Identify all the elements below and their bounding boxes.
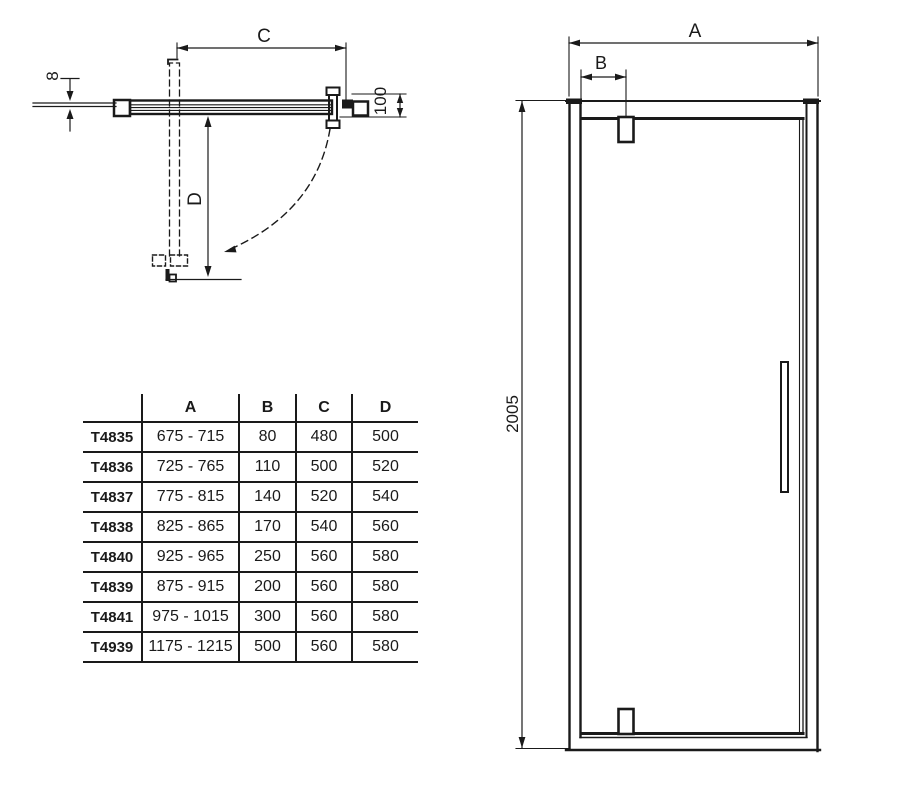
model-cell: T4840: [83, 542, 142, 572]
table-row: T4841 975 - 1015 300 560 580: [83, 602, 418, 632]
value-a: 925 - 965: [142, 542, 239, 572]
dim-label-d: D: [180, 184, 210, 214]
value-c: 540: [296, 512, 352, 542]
value-d: 580: [352, 602, 418, 632]
value-c: 560: [296, 542, 352, 572]
value-b: 110: [239, 452, 296, 482]
value-d: 500: [352, 422, 418, 452]
value-c: 560: [296, 572, 352, 602]
value-d: 560: [352, 512, 418, 542]
table-row: T4837 775 - 815 140 520 540: [83, 482, 418, 512]
table-row: T4835 675 - 715 80 480 500: [83, 422, 418, 452]
value-b: 140: [239, 482, 296, 512]
value-d: 540: [352, 482, 418, 512]
door-panel-plan: [130, 101, 332, 115]
model-cell: T4841: [83, 602, 142, 632]
dim-c: [177, 43, 346, 99]
header-model: [83, 394, 142, 422]
model-cell: T4839: [83, 572, 142, 602]
model-cell: T4836: [83, 452, 142, 482]
header-c: C: [296, 394, 352, 422]
door-handle: [781, 362, 788, 492]
table-row: T4836 725 - 765 110 500 520: [83, 452, 418, 482]
header-b: B: [239, 394, 296, 422]
value-c: 560: [296, 632, 352, 662]
value-a: 725 - 765: [142, 452, 239, 482]
plan-view: [33, 43, 406, 282]
value-c: 480: [296, 422, 352, 452]
dim-label-c: C: [244, 23, 284, 49]
value-a: 825 - 865: [142, 512, 239, 542]
dim-label-b: B: [583, 51, 619, 75]
value-b: 170: [239, 512, 296, 542]
value-a: 875 - 915: [142, 572, 239, 602]
model-cell: T4837: [83, 482, 142, 512]
table-row: T4939 1175 - 1215 500 560 580: [83, 632, 418, 662]
model-cell: T4838: [83, 512, 142, 542]
table-row: T4838 825 - 865 170 540 560: [83, 512, 418, 542]
value-c: 500: [296, 452, 352, 482]
dim-label-2005: 2005: [500, 384, 524, 444]
table-header-row: A B C D: [83, 394, 418, 422]
technical-drawing-page: C 8 100 D A B 2005 A B C D T4835: [0, 0, 923, 805]
front-view: [516, 37, 820, 751]
bottom-hinge: [619, 709, 634, 734]
dim-label-glass-thickness: 8: [37, 61, 67, 91]
table-row: T4840 925 - 965 250 560 580: [83, 542, 418, 572]
model-cell: T4835: [83, 422, 142, 452]
value-b: 300: [239, 602, 296, 632]
value-c: 520: [296, 482, 352, 512]
value-b: 200: [239, 572, 296, 602]
value-d: 580: [352, 572, 418, 602]
value-d: 580: [352, 542, 418, 572]
value-a: 975 - 1015: [142, 602, 239, 632]
swing-arc: [224, 129, 330, 252]
value-b: 80: [239, 422, 296, 452]
top-hinge: [619, 117, 634, 142]
value-c: 560: [296, 602, 352, 632]
header-a: A: [142, 394, 239, 422]
dim-label-a: A: [675, 18, 715, 44]
value-a: 775 - 815: [142, 482, 239, 512]
dimensions-table: A B C D T4835 675 - 715 80 480 500 T4836…: [83, 394, 418, 663]
value-d: 580: [352, 632, 418, 662]
open-door-dashed: [153, 60, 188, 282]
dim-label-100: 100: [365, 79, 395, 123]
value-a: 675 - 715: [142, 422, 239, 452]
header-d: D: [352, 394, 418, 422]
value-b: 500: [239, 632, 296, 662]
value-a: 1175 - 1215: [142, 632, 239, 662]
model-cell: T4939: [83, 632, 142, 662]
table-row: T4839 875 - 915 200 560 580: [83, 572, 418, 602]
value-b: 250: [239, 542, 296, 572]
dim-2005: [516, 101, 570, 749]
value-d: 520: [352, 452, 418, 482]
dim-b: [581, 70, 626, 122]
